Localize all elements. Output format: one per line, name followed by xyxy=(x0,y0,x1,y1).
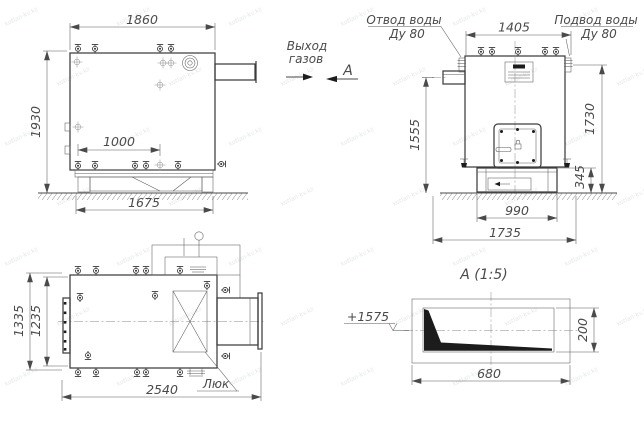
boiler-technical-drawing: kotlan-kv.kzkotlan-kv.kzkotlan-kv.kzkotl… xyxy=(0,0,644,430)
dim-front-overall: 1735 xyxy=(489,225,521,240)
dim-side-inner: 1000 xyxy=(103,134,135,149)
dim-front-left-height: 1555 xyxy=(407,119,422,151)
section-letter: А xyxy=(342,63,353,79)
dim-side-base: 1675 xyxy=(128,195,160,210)
water-outlet-text-2: Ду 80 xyxy=(388,27,425,41)
dim-plan-inner: 1235 xyxy=(28,305,43,337)
dim-side-height: 1930 xyxy=(28,106,43,138)
water-outlet-text-1: Отвод воды xyxy=(366,13,441,27)
technical-drawing-page: kotlan-kv.kzkotlan-kv.kzkotlan-kv.kzkotl… xyxy=(0,0,644,430)
section-title: А (1:5) xyxy=(459,267,507,283)
dim-front-width: 1405 xyxy=(498,20,530,35)
dim-section-height: 200 xyxy=(575,318,590,342)
gas-outlet-text-1: Выход xyxy=(287,39,327,53)
water-inlet-text-2: Ду 80 xyxy=(580,27,617,41)
gas-outlet-text-2: газов xyxy=(289,52,323,66)
dim-base-width: 990 xyxy=(505,203,529,218)
ground-line xyxy=(440,193,617,200)
dim-plan-length: 2540 xyxy=(146,382,178,397)
dim-plan-outer: 1335 xyxy=(11,305,26,337)
water-inlet-text-1: Подвод воды xyxy=(554,13,637,27)
dim-front-right-height: 1730 xyxy=(582,103,597,135)
elevation-text: +1575 xyxy=(347,309,389,324)
dim-base-height: 345 xyxy=(572,165,587,189)
dim-side-width: 1860 xyxy=(126,12,158,27)
dim-section-width: 680 xyxy=(477,366,501,381)
hatch-label-text: Люк xyxy=(202,377,230,391)
